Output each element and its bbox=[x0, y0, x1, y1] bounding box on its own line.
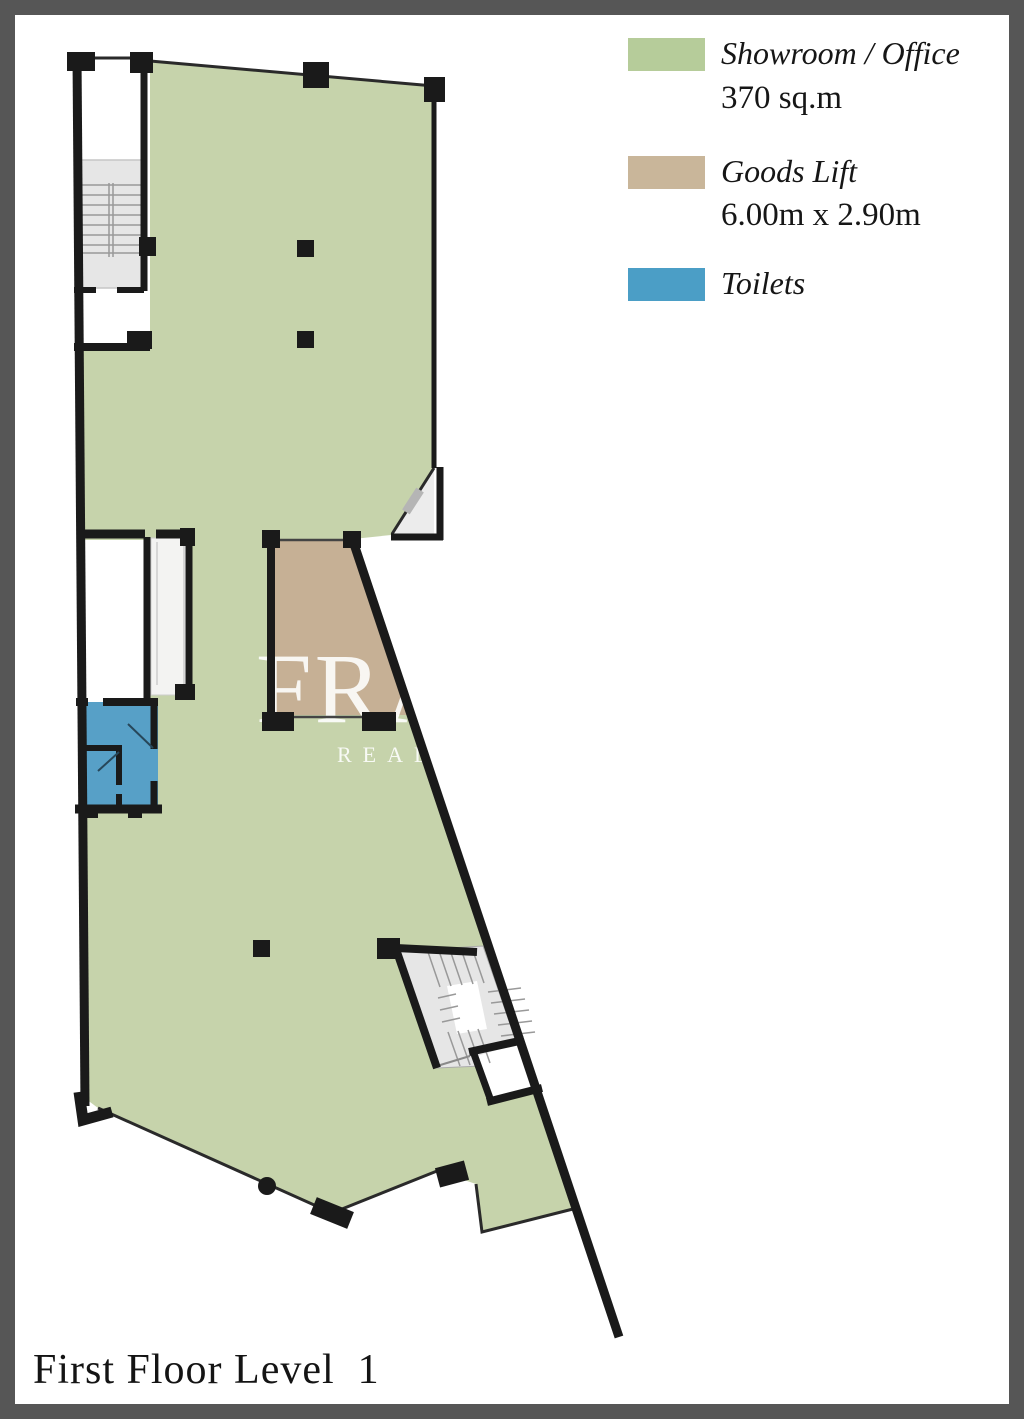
legend: Showroom / Office 370 sq.m Goods Lift 6.… bbox=[0, 0, 1024, 1419]
legend-label-showroom: Showroom / Office bbox=[721, 36, 960, 71]
floorplan-page: FRA REAL E bbox=[0, 0, 1024, 1419]
legend-swatch-showroom bbox=[628, 38, 705, 71]
legend-swatch-goods-lift bbox=[628, 156, 705, 189]
legend-detail-goods-lift: 6.00m x 2.90m bbox=[721, 197, 921, 233]
page-title: First Floor Level 1 bbox=[33, 1346, 380, 1394]
legend-label-toilets: Toilets bbox=[721, 266, 805, 301]
legend-swatch-toilets bbox=[628, 268, 705, 301]
legend-detail-showroom: 370 sq.m bbox=[721, 80, 842, 116]
legend-label-goods-lift: Goods Lift bbox=[721, 154, 857, 189]
